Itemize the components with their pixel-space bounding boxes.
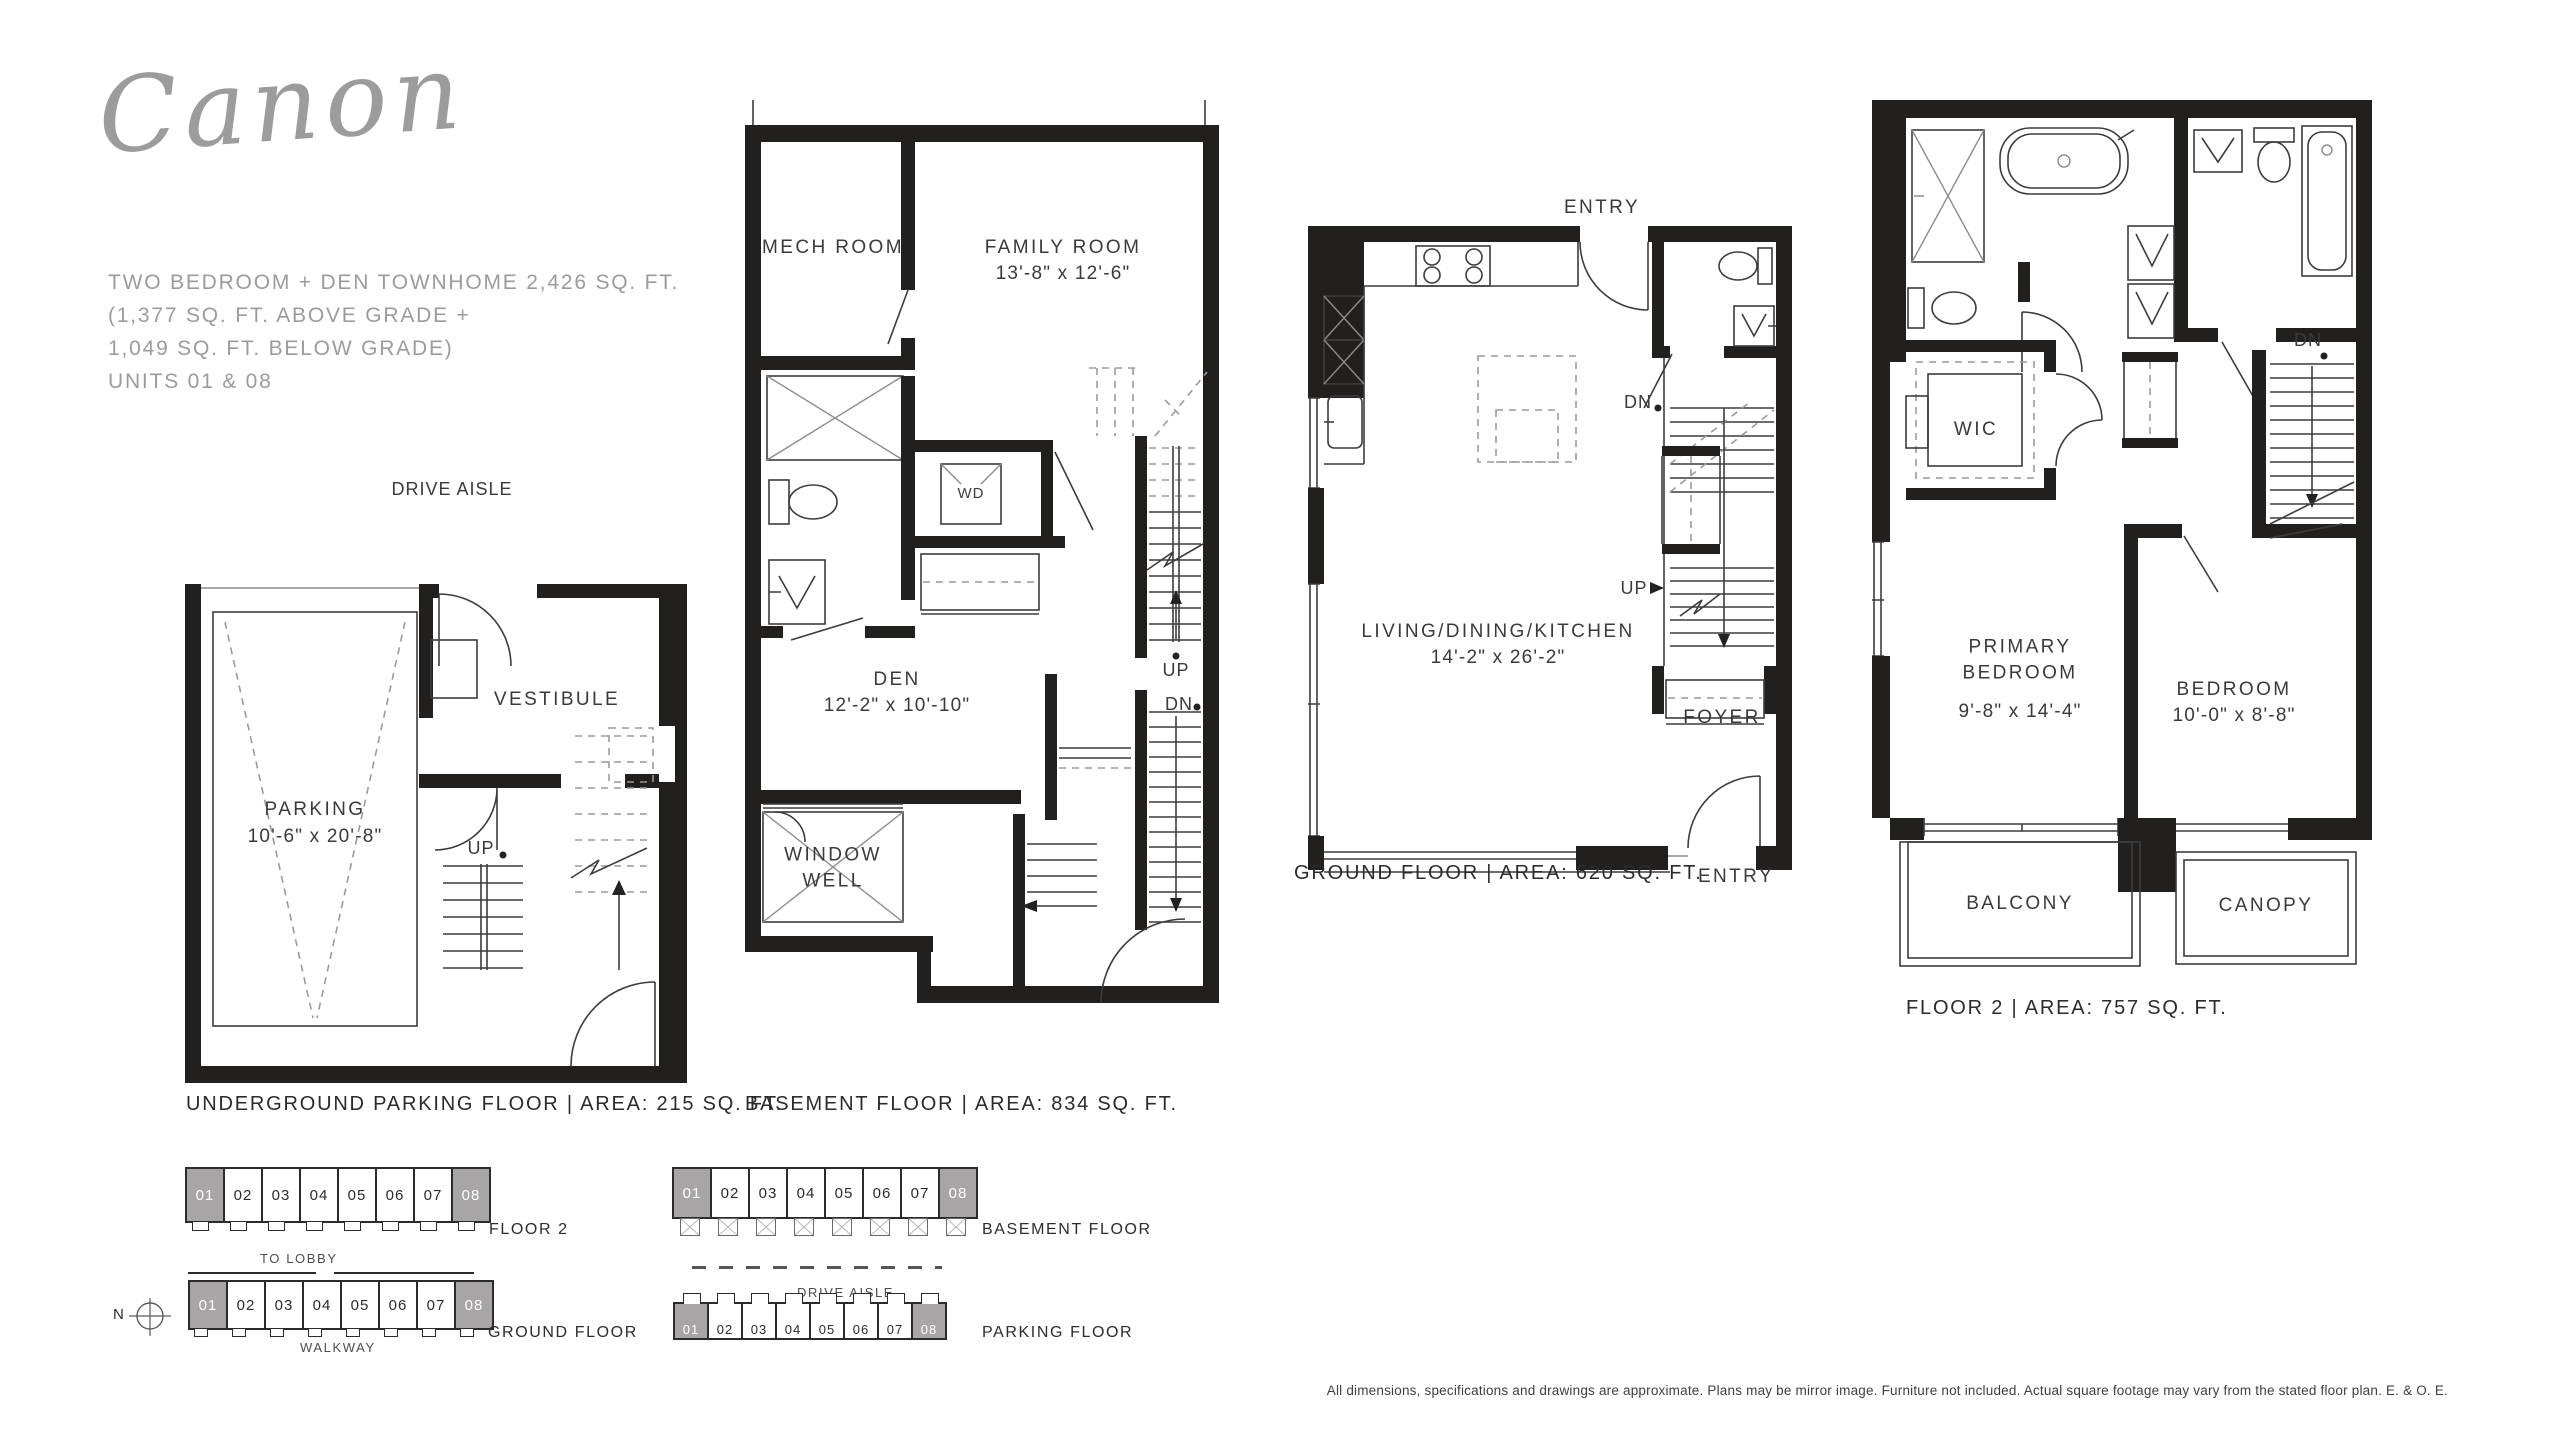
keyplan-unit-06: 06 <box>375 1167 415 1223</box>
keyplan-unit-02: 02 <box>710 1167 750 1219</box>
keyplan-unit-05: 05 <box>337 1167 377 1223</box>
window-well-label: WINDOW WELL <box>768 842 898 893</box>
keyplan-unit-04: 04 <box>775 1302 811 1340</box>
north-label: N <box>113 1306 125 1323</box>
keyplan-unit-08: 08 <box>454 1280 494 1330</box>
family-room-dims: 13'-8" x 12'-6" <box>996 261 1131 287</box>
summary-line-4: UNITS 01 & 08 <box>108 365 679 398</box>
wd-label: WD <box>958 484 985 504</box>
floorplan-sheet: Canon TWO BEDROOM + DEN TOWNHOME 2,426 S… <box>0 0 2560 1440</box>
lobby-bracket-left <box>188 1272 316 1274</box>
parking-caption: UNDERGROUND PARKING FLOOR | AREA: 215 SQ… <box>186 1093 783 1116</box>
basement-up-label: UP <box>1162 658 1189 682</box>
keyplan-unit-05: 05 <box>809 1302 845 1340</box>
keyplan-parking-row: 0102030405060708 <box>673 1302 947 1340</box>
keyplan-ground-label: GROUND FLOOR <box>488 1324 638 1342</box>
vestibule-label: VESTIBULE <box>494 687 620 713</box>
disclaimer-text: All dimensions, specifications and drawi… <box>1327 1383 2448 1398</box>
brand-logo: Canon <box>95 39 470 168</box>
ground-entry-bottom-label: ENTRY <box>1698 864 1774 890</box>
keyplan-unit-07: 07 <box>900 1167 940 1219</box>
plan-basement: MECH ROOM FAMILY ROOM 13'-8" x 12'-6" WD… <box>745 100 1225 1065</box>
plan-ground-floor: ENTRY LIVING/DINING/KITCHEN 14'-2" x 26'… <box>1290 196 1802 892</box>
mech-room-label: MECH ROOM <box>762 235 904 261</box>
keyplan-unit-07: 07 <box>416 1280 456 1330</box>
keyplan-unit-07: 07 <box>877 1302 913 1340</box>
north-compass-icon <box>126 1298 176 1338</box>
keyplan-unit-08: 08 <box>911 1302 947 1340</box>
foyer-label: FOYER <box>1683 705 1760 731</box>
floor2-plan-svg <box>1872 100 2372 1008</box>
parking-up-label: UP <box>467 836 494 860</box>
keyplan-unit-02: 02 <box>223 1167 263 1223</box>
keyplan-unit-05: 05 <box>340 1280 380 1330</box>
keyplan-parking-label: PARKING FLOOR <box>982 1324 1133 1342</box>
floor2-caption: FLOOR 2 | AREA: 757 SQ. FT. <box>1906 997 2228 1020</box>
balcony-label: BALCONY <box>1966 891 2074 917</box>
keyplan-unit-03: 03 <box>261 1167 301 1223</box>
keyplan-unit-04: 04 <box>302 1280 342 1330</box>
keyplan-unit-01: 01 <box>672 1167 712 1219</box>
ground-entry-top-label: ENTRY <box>1564 195 1640 221</box>
keyplan-ground-row: 0102030405060708 <box>188 1280 494 1330</box>
keyplan-unit-02: 02 <box>226 1280 266 1330</box>
ground-plan-svg <box>1290 196 1802 892</box>
keyplan-floor2-label: FLOOR 2 <box>489 1221 569 1239</box>
summary-block: TWO BEDROOM + DEN TOWNHOME 2,426 SQ. FT.… <box>108 266 679 398</box>
ground-caption: GROUND FLOOR | AREA: 620 SQ. FT. <box>1294 862 1702 885</box>
living-dims: 14'-2" x 26'-2" <box>1431 645 1566 671</box>
den-label: DEN <box>873 667 920 693</box>
summary-line-1: TWO BEDROOM + DEN TOWNHOME 2,426 SQ. FT. <box>108 266 679 299</box>
keyplan-unit-06: 06 <box>862 1167 902 1219</box>
keyplan-basement-label: BASEMENT FLOOR <box>982 1221 1152 1239</box>
ground-dn-label: DN <box>1624 390 1652 414</box>
plan-underground-parking: PARKING 10'-6" x 20'-8" VESTIBULE UP <box>185 578 687 1085</box>
keyplan-unit-02: 02 <box>707 1302 743 1340</box>
keyplan-unit-07: 07 <box>413 1167 453 1223</box>
keyplan-unit-05: 05 <box>824 1167 864 1219</box>
keyplan-unit-01: 01 <box>188 1280 228 1330</box>
basement-caption: BASEMENT FLOOR | AREA: 834 SQ. FT. <box>745 1093 1178 1116</box>
keyplan-unit-06: 06 <box>378 1280 418 1330</box>
ground-up-label: UP <box>1620 576 1647 600</box>
parking-room-label: PARKING <box>265 797 366 823</box>
keyplan-unit-01: 01 <box>673 1302 709 1340</box>
keyplan-floor2-row: 0102030405060708 <box>185 1167 491 1223</box>
to-lobby-label: TO LOBBY <box>260 1251 338 1266</box>
family-room-label: FAMILY ROOM <box>985 235 1142 261</box>
keyplan-unit-06: 06 <box>843 1302 879 1340</box>
wic-label: WIC <box>1954 417 1998 443</box>
den-dims: 12'-2" x 10'-10" <box>824 693 971 719</box>
summary-line-2: (1,377 SQ. FT. ABOVE GRADE + <box>108 299 679 332</box>
bedroom-label: BEDROOM <box>2177 677 2292 703</box>
keyplan-unit-03: 03 <box>748 1167 788 1219</box>
keyplan-unit-08: 08 <box>938 1167 978 1219</box>
living-label: LIVING/DINING/KITCHEN <box>1361 619 1634 645</box>
keyplan-unit-08: 08 <box>451 1167 491 1223</box>
floor2-dn-label: DN <box>2294 328 2322 352</box>
keyplan-unit-03: 03 <box>741 1302 777 1340</box>
canopy-label: CANOPY <box>2219 893 2314 919</box>
drive-aisle-label: DRIVE AISLE <box>391 477 512 501</box>
keyplan-basement-row: 0102030405060708 <box>672 1167 978 1219</box>
walkway-label: WALKWAY <box>300 1340 376 1355</box>
keyplan-unit-03: 03 <box>264 1280 304 1330</box>
summary-line-3: 1,049 SQ. FT. BELOW GRADE) <box>108 332 679 365</box>
primary-bedroom-label: PRIMARY BEDROOM <box>1920 634 2120 685</box>
keyplan-unit-04: 04 <box>299 1167 339 1223</box>
parking-room-dims: 10'-6" x 20'-8" <box>248 824 383 850</box>
basement-dn-label: DN <box>1165 692 1193 716</box>
keyplan-unit-04: 04 <box>786 1167 826 1219</box>
primary-bedroom-dims: 9'-8" x 14'-4" <box>1958 699 2081 725</box>
bedroom-dims: 10'-0" x 8'-8" <box>2172 703 2295 729</box>
plan-floor-2: PRIMARY BEDROOM 9'-8" x 14'-4" BEDROOM 1… <box>1872 100 2372 1008</box>
keyplan-drive-aisle-label: DRIVE AISLE <box>797 1285 894 1300</box>
lobby-bracket-right <box>334 1272 474 1274</box>
keyplan-unit-01: 01 <box>185 1167 225 1223</box>
drive-aisle-dashes <box>692 1266 942 1269</box>
